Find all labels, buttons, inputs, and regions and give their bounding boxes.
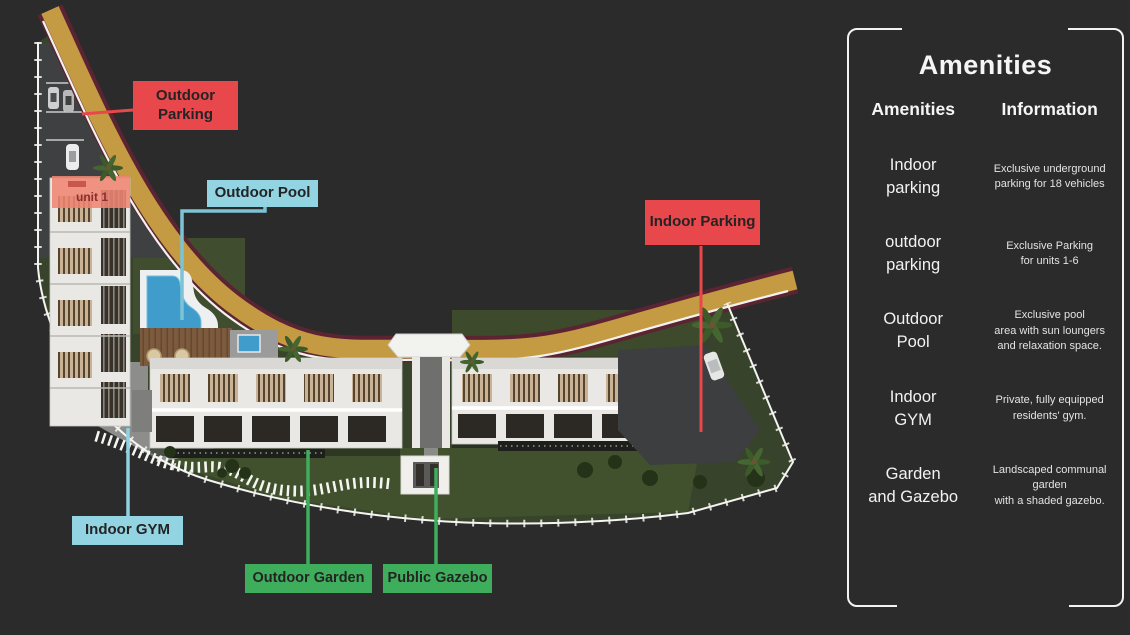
amenities-table: Indoor parking Exclusive underground par… (849, 154, 1122, 509)
trellis (498, 441, 640, 451)
amenity-name: Outdoor Pool (849, 308, 977, 354)
spa-pool (238, 335, 260, 352)
frame-gap-top (902, 25, 1068, 33)
table-row: Garden and Gazebo Landscaped communal ga… (849, 463, 1122, 509)
outdoor-parking-label: Outdoor Parking (133, 81, 238, 130)
column-header-information: Information (977, 99, 1122, 120)
public-gazebo-label: Public Gazebo (383, 564, 492, 593)
left-building (50, 178, 130, 426)
unit1-label: unit 1 (76, 190, 108, 204)
indoor-gym-label: Indoor GYM (72, 516, 183, 545)
amenity-name: Indoor GYM (849, 386, 977, 432)
indoor-parking-label: Indoor Parking (645, 200, 760, 245)
outdoor-garden-label: Outdoor Garden (245, 564, 372, 593)
amenity-name: Garden and Gazebo (849, 463, 977, 509)
amenity-name: Indoor parking (849, 154, 977, 200)
amenity-name: outdoor parking (849, 231, 977, 277)
column-header-amenities: Amenities (849, 99, 977, 120)
amenity-info: Exclusive Parking for units 1-6 (977, 239, 1122, 270)
table-row: Indoor GYM Private, fully equipped resid… (849, 386, 1122, 432)
table-row: outdoor parking Exclusive Parking for un… (849, 231, 1122, 277)
frame-gap-bottom (897, 602, 1069, 610)
amenities-panel: Amenities Amenities Information Indoor p… (847, 28, 1124, 607)
outdoor-pool-label: Outdoor Pool (207, 180, 318, 207)
table-row: Outdoor Pool Exclusive pool area with su… (849, 308, 1122, 354)
unit1-highlight: unit 1 (52, 176, 130, 208)
panel-title: Amenities (849, 50, 1122, 81)
table-row: Indoor parking Exclusive underground par… (849, 154, 1122, 200)
site-plan: unit 1 (0, 0, 830, 635)
trellis (170, 449, 325, 458)
amenity-info: Exclusive underground parking for 18 veh… (977, 162, 1122, 193)
building-steps (132, 390, 152, 432)
amenity-info: Exclusive pool area with sun loungers an… (977, 308, 1122, 354)
amenity-info: Landscaped communal garden with a shaded… (977, 463, 1122, 509)
amenity-info: Private, fully equipped residents' gym. (977, 393, 1122, 424)
